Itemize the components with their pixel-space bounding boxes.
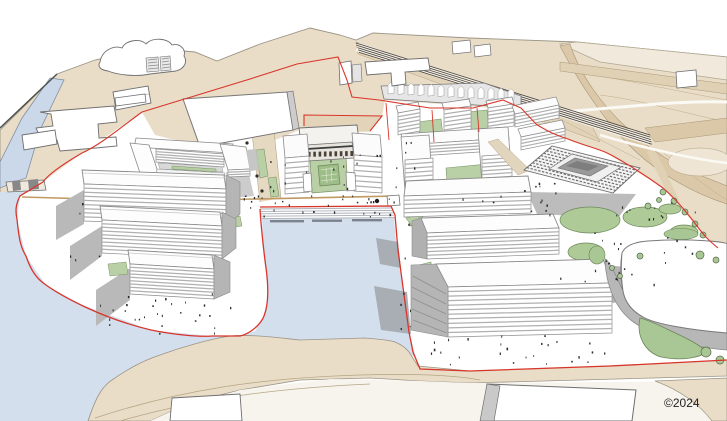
svg-text:©2024: ©2024 bbox=[664, 396, 700, 410]
